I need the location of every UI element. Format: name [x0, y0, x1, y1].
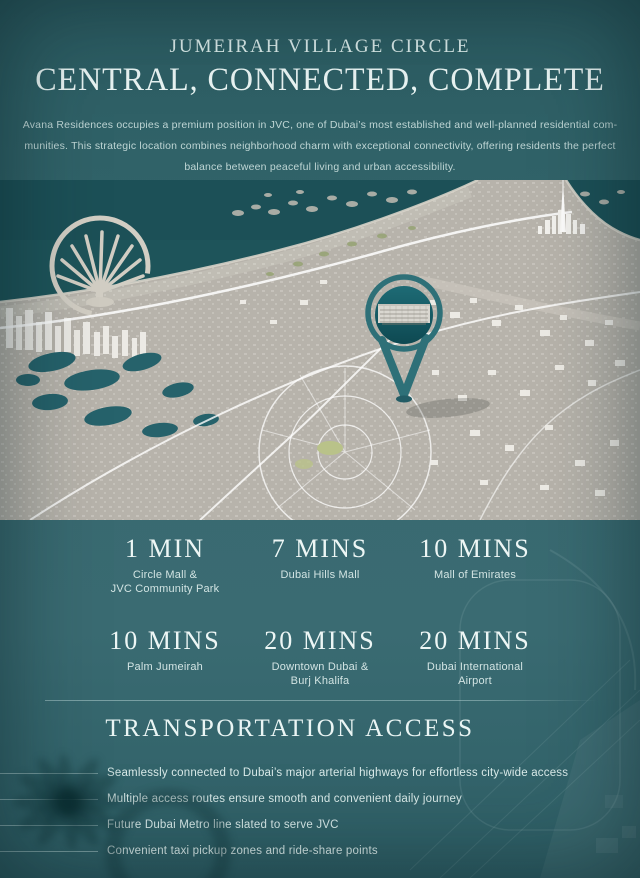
transportation-item: Multiple access routes ensure smooth and…: [0, 786, 640, 812]
transportation-item-text: Convenient taxi pickup zones and ride-sh…: [107, 845, 378, 857]
header: JUMEIRAH VILLAGE CIRCLE CENTRAL, CONNECT…: [0, 0, 640, 178]
travel-time-value: 10 MINS: [88, 626, 243, 656]
transportation-section: TRANSPORTATION ACCESS Seamlessly connect…: [0, 712, 640, 864]
travel-time-value: 7 MINS: [243, 534, 398, 564]
intro-line: munities. This strategic location combin…: [0, 136, 640, 157]
travel-time-destination: Circle Mall & JVC Community Park: [88, 568, 243, 596]
travel-time-item: 1 MIN Circle Mall & JVC Community Park: [88, 534, 243, 596]
travel-time-destination: Mall of Emirates: [398, 568, 553, 582]
travel-time-item: 10 MINS Mall of Emirates: [398, 534, 553, 596]
travel-time-item: 20 MINS Downtown Dubai & Burj Khalifa: [243, 626, 398, 688]
travel-time-destination: Downtown Dubai & Burj Khalifa: [243, 660, 398, 688]
transportation-title: TRANSPORTATION ACCESS: [0, 712, 580, 746]
travel-time-item: 10 MINS Palm Jumeirah: [88, 626, 243, 688]
section-divider: [45, 700, 597, 701]
travel-time-value: 20 MINS: [398, 626, 553, 656]
bullet-rule-line: [0, 851, 98, 852]
intro-paragraph: Avana Residences occupies a premium posi…: [0, 115, 640, 178]
location-subtitle: JUMEIRAH VILLAGE CIRCLE: [0, 36, 640, 58]
travel-time-value: 1 MIN: [88, 534, 243, 564]
travel-time-destination: Palm Jumeirah: [88, 660, 243, 674]
bullet-rule-line: [0, 825, 98, 826]
transportation-item-text: Multiple access routes ensure smooth and…: [107, 793, 462, 805]
pin-building-render: [378, 304, 430, 325]
jvc-location-poster: JUMEIRAH VILLAGE CIRCLE CENTRAL, CONNECT…: [0, 0, 640, 878]
travel-time-item: 20 MINS Dubai International Airport: [398, 626, 553, 688]
page-title: CENTRAL, CONNECTED, COMPLETE: [10, 62, 631, 99]
travel-time-item: 7 MINS Dubai Hills Mall: [243, 534, 398, 596]
transportation-item-text: Future Dubai Metro line slated to serve …: [107, 819, 339, 831]
transportation-item: Convenient taxi pickup zones and ride-sh…: [0, 838, 640, 864]
transportation-list: Seamlessly connected to Dubai’s major ar…: [0, 760, 640, 864]
bullet-rule-line: [0, 799, 98, 800]
transportation-item: Seamlessly connected to Dubai’s major ar…: [0, 760, 640, 786]
map-illustration: [0, 180, 640, 520]
transportation-item: Future Dubai Metro line slated to serve …: [0, 812, 640, 838]
intro-line: balance between peaceful living and urba…: [0, 157, 640, 178]
travel-times-row: 10 MINS Palm Jumeirah 20 MINS Downtown D…: [0, 626, 640, 688]
bullet-rule-line: [0, 773, 98, 774]
transportation-item-text: Seamlessly connected to Dubai’s major ar…: [107, 767, 568, 779]
travel-times-row: 1 MIN Circle Mall & JVC Community Park 7…: [0, 534, 640, 596]
travel-time-destination: Dubai Hills Mall: [243, 568, 398, 582]
travel-time-value: 20 MINS: [243, 626, 398, 656]
travel-time-destination: Dubai International Airport: [398, 660, 553, 688]
intro-line: Avana Residences occupies a premium posi…: [0, 115, 640, 136]
travel-time-value: 10 MINS: [398, 534, 553, 564]
travel-times-section: 1 MIN Circle Mall & JVC Community Park 7…: [0, 520, 640, 688]
dubai-aerial-map: [0, 180, 640, 520]
